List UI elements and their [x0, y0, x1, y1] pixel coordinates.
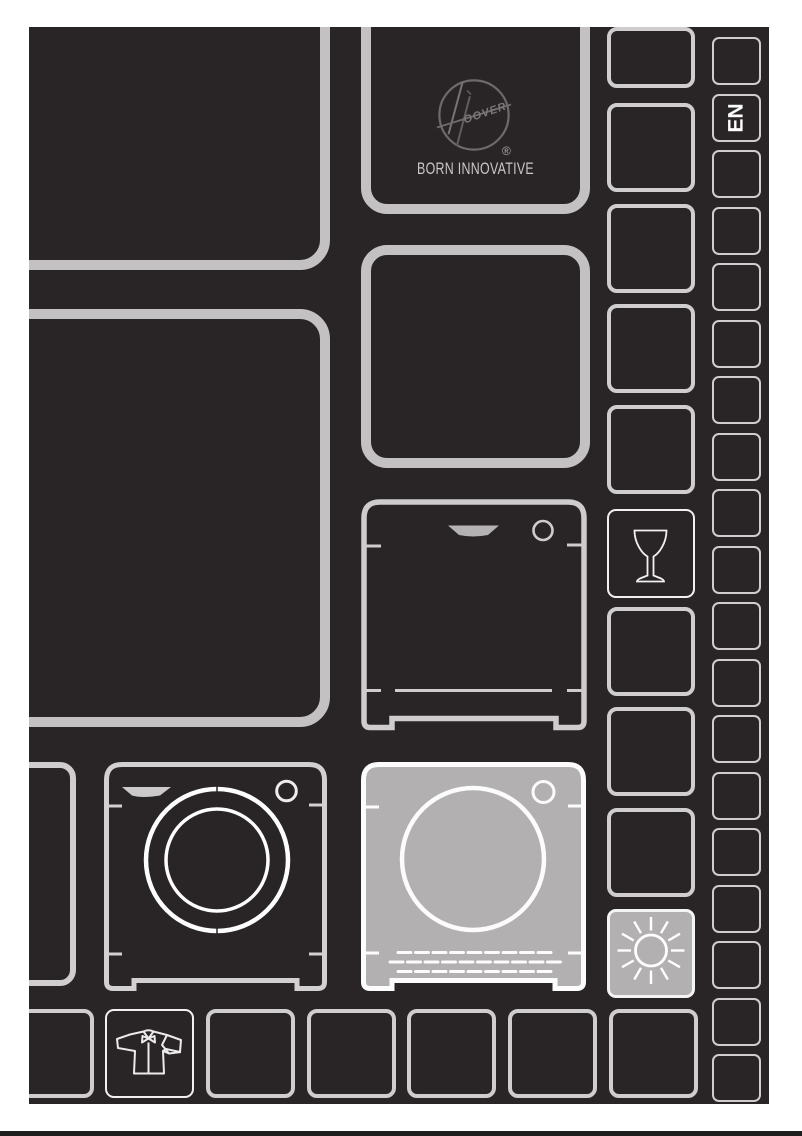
svg-text:OOVER: OOVER — [462, 100, 508, 126]
